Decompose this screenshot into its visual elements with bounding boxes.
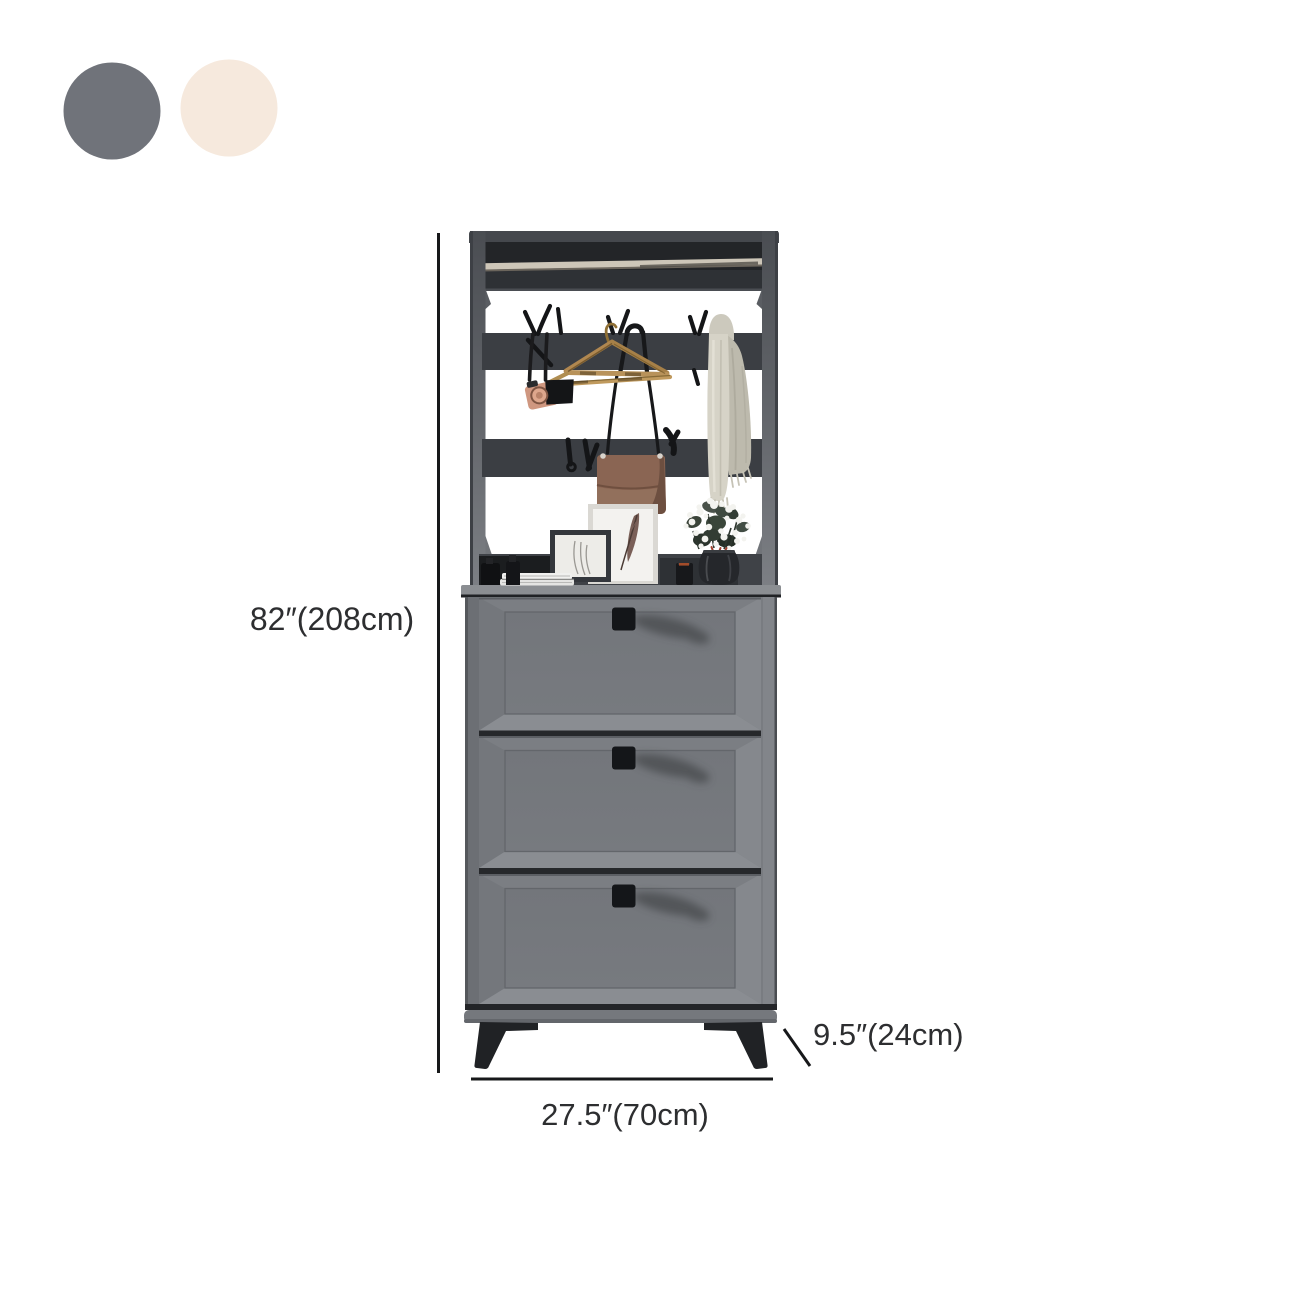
svg-text:27.5″(70cm): 27.5″(70cm): [541, 1097, 709, 1132]
svg-text:82″(208cm): 82″(208cm): [250, 601, 414, 637]
svg-text:9.5″(24cm): 9.5″(24cm): [813, 1017, 964, 1052]
